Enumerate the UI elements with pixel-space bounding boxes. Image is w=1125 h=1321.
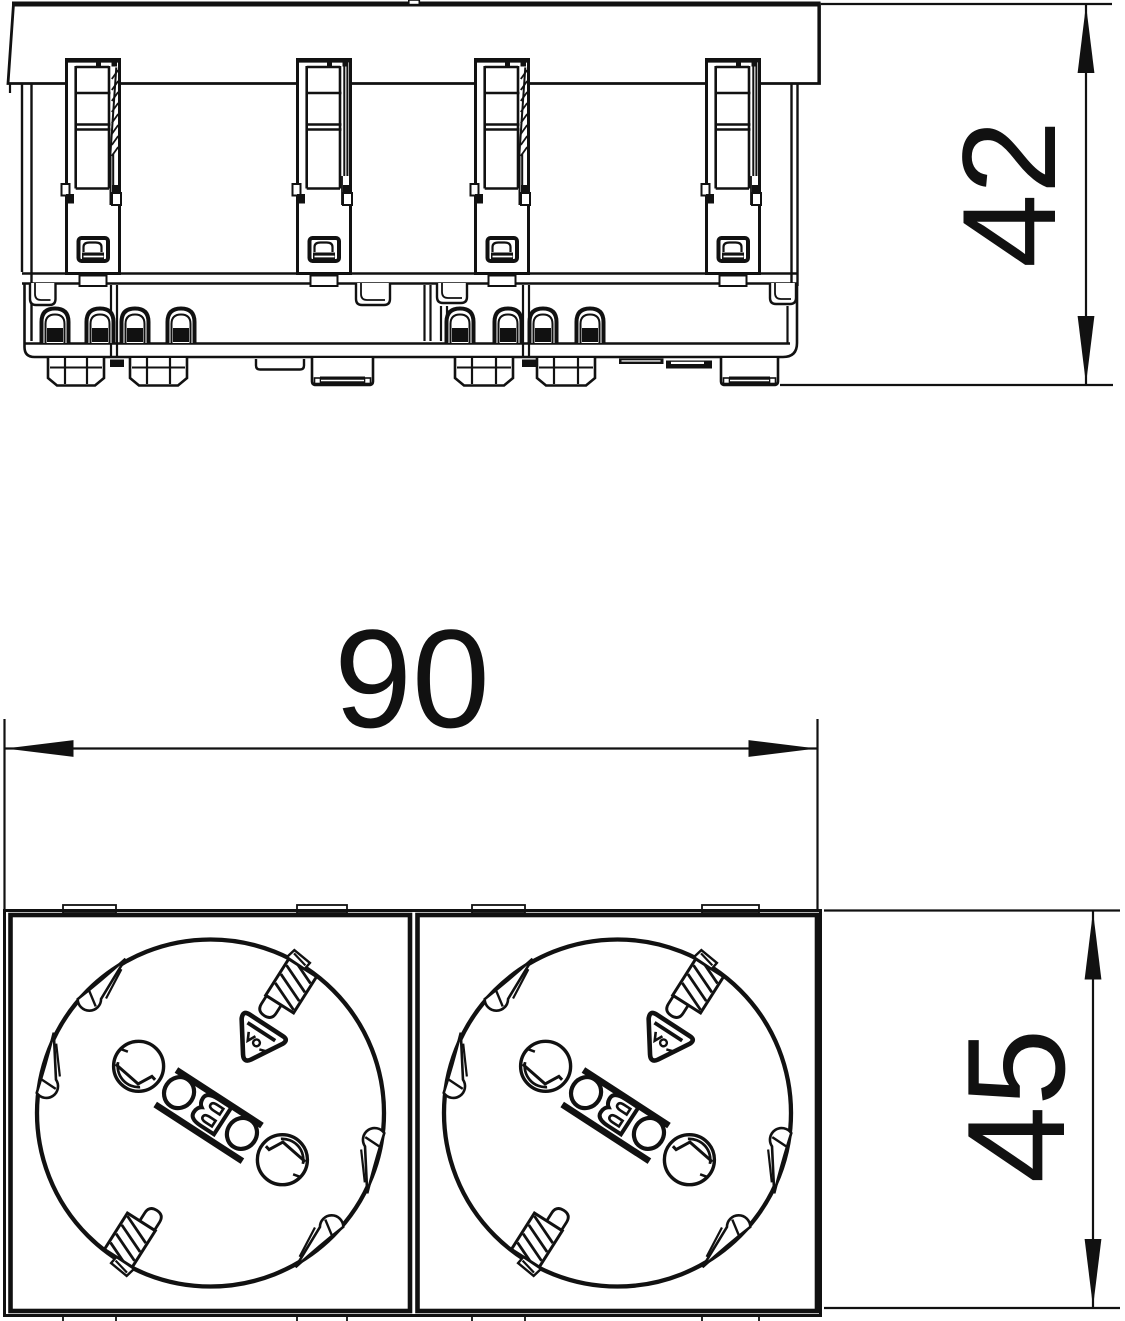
svg-text:42: 42 <box>936 120 1084 268</box>
svg-text:45: 45 <box>939 1029 1094 1184</box>
svg-text:90: 90 <box>334 600 490 757</box>
